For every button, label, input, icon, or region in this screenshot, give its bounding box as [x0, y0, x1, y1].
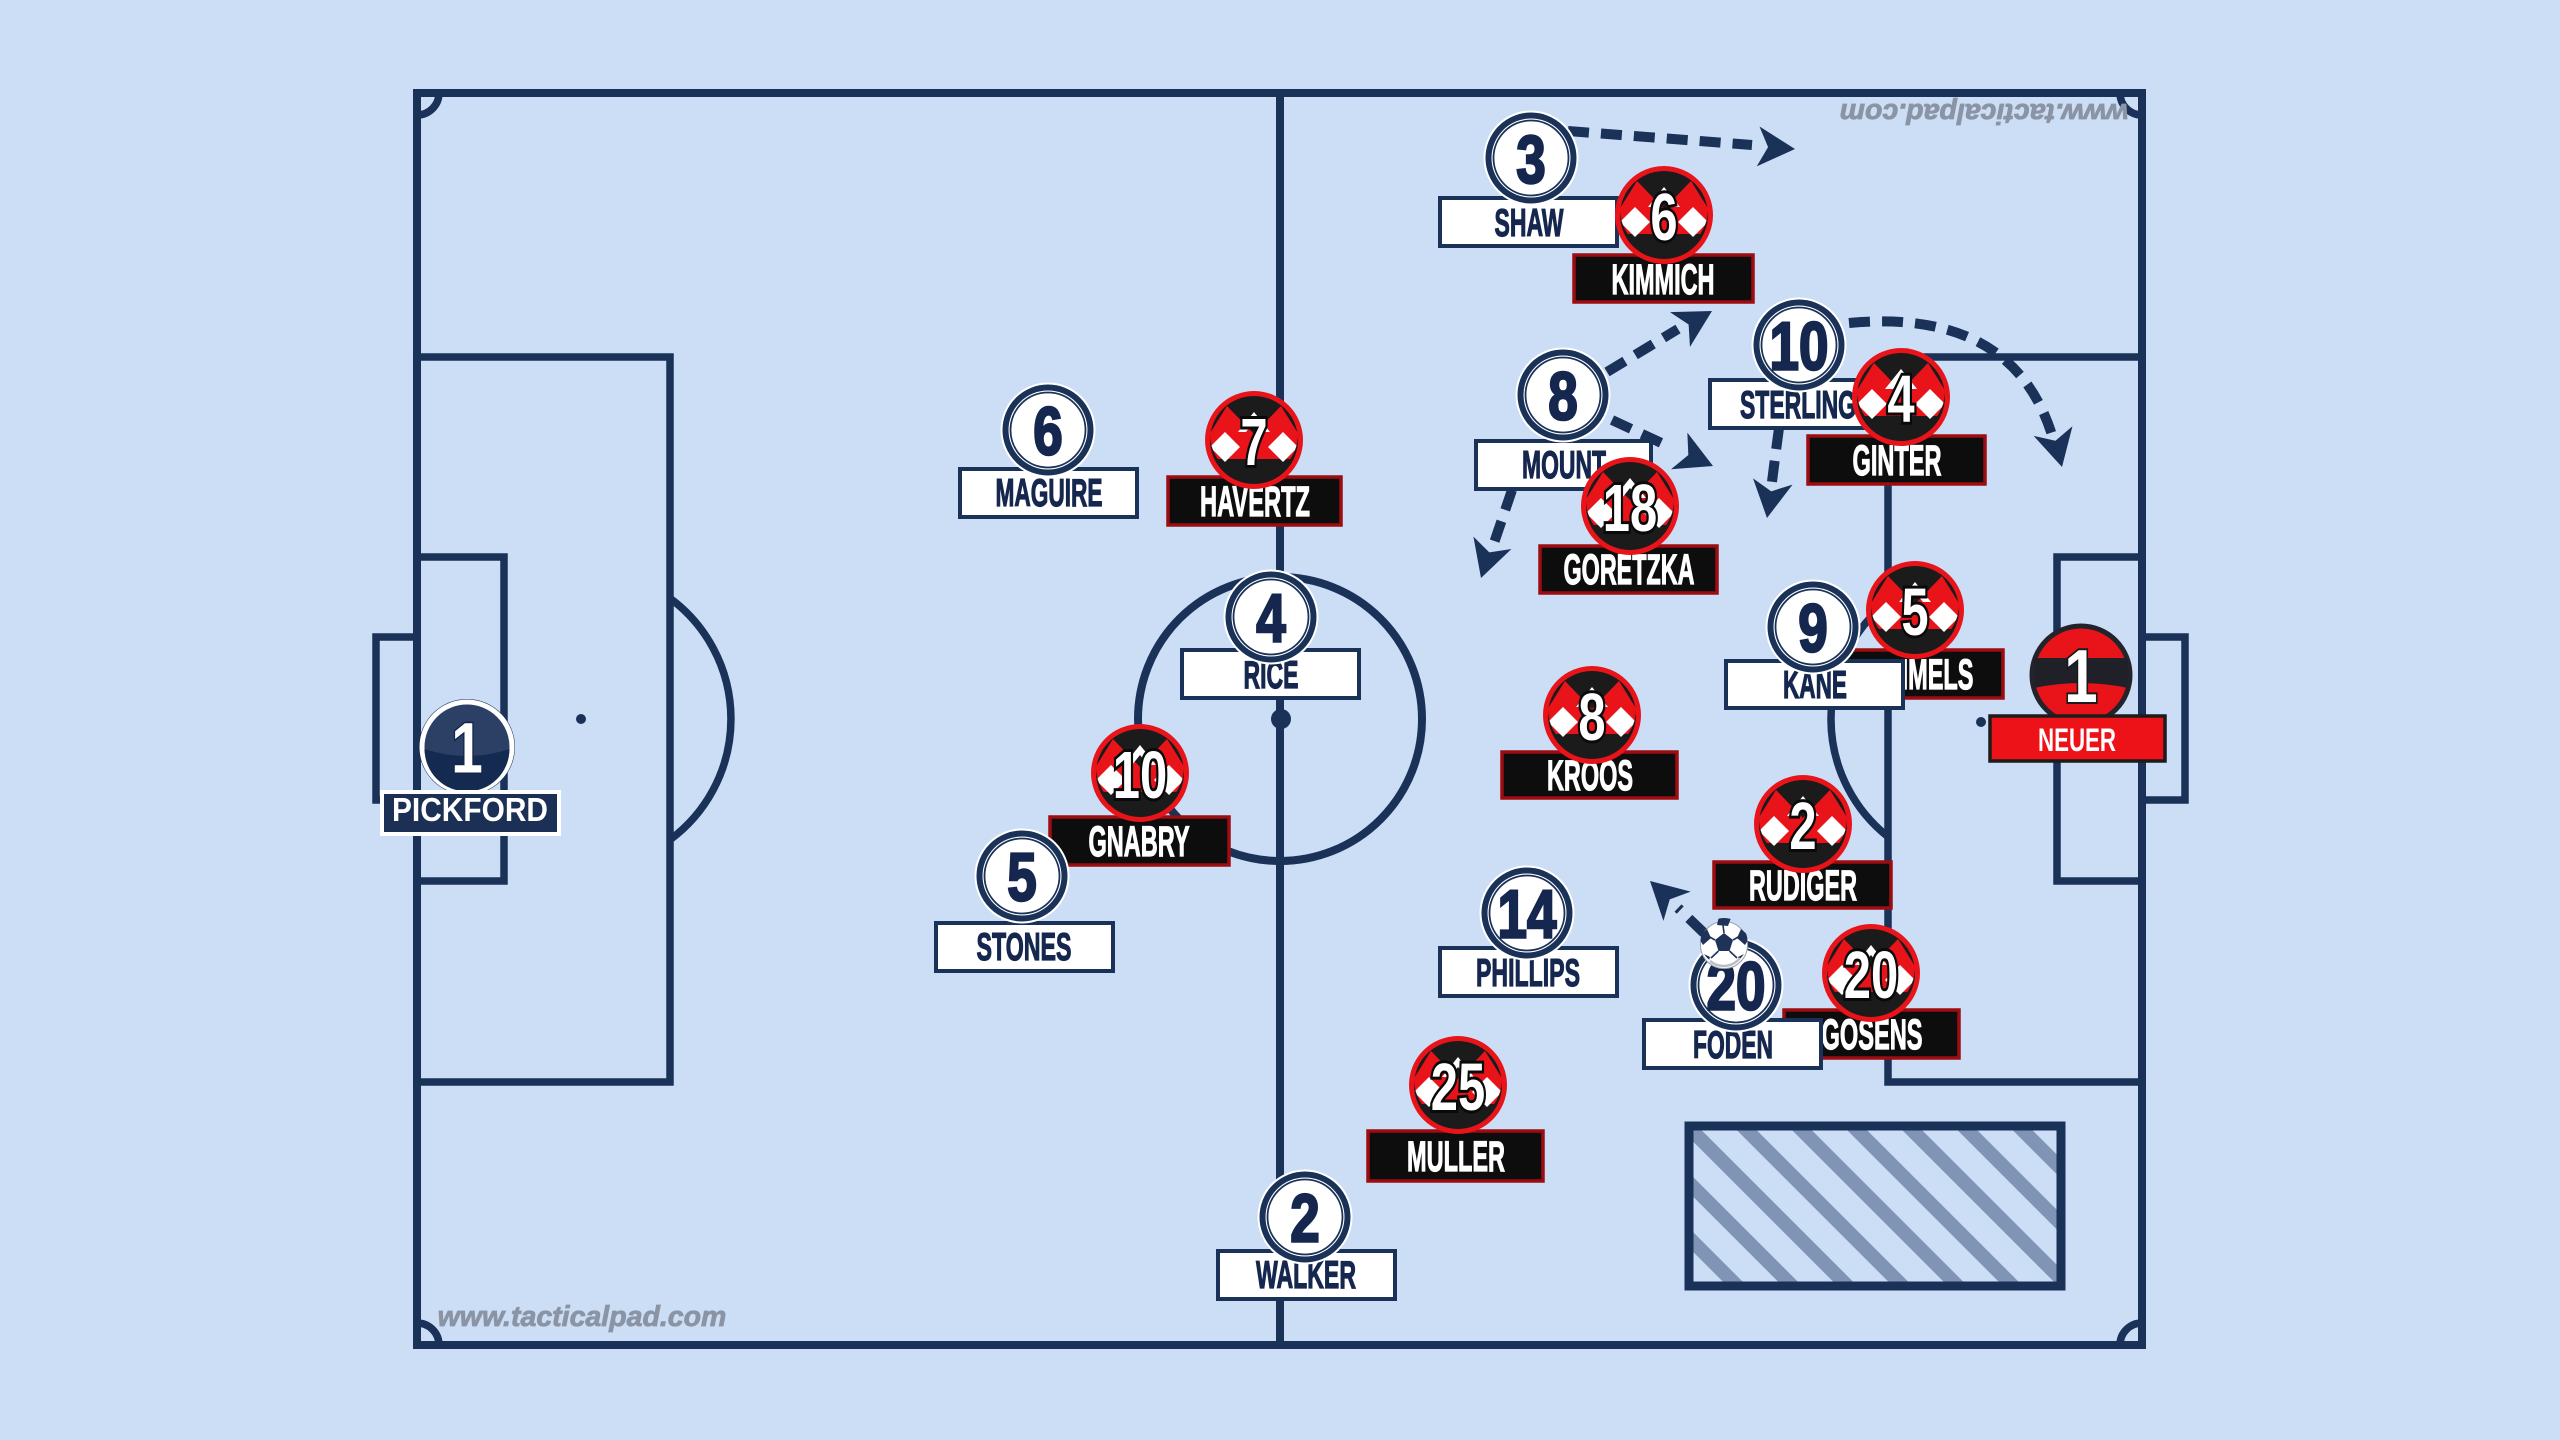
svg-text:8: 8 — [1548, 358, 1578, 434]
svg-text:14: 14 — [1498, 876, 1557, 952]
svg-text:18: 18 — [1603, 472, 1657, 546]
svg-text:3: 3 — [1516, 121, 1546, 197]
svg-text:10: 10 — [1770, 308, 1829, 384]
svg-text:8: 8 — [1578, 681, 1605, 755]
svg-text:MAGUIRE: MAGUIRE — [996, 472, 1103, 515]
svg-text:9: 9 — [1798, 590, 1828, 666]
svg-text:1: 1 — [2064, 636, 2097, 719]
svg-text:25: 25 — [1431, 1051, 1485, 1125]
svg-text:5: 5 — [1007, 839, 1037, 915]
svg-text:www.tacticalpad.com: www.tacticalpad.com — [1840, 97, 2129, 129]
svg-text:STONES: STONES — [977, 926, 1072, 969]
svg-text:10: 10 — [1113, 739, 1167, 813]
svg-text:PICKFORD: PICKFORD — [392, 791, 548, 828]
svg-text:MULLER: MULLER — [1407, 1133, 1505, 1181]
svg-text:6: 6 — [1033, 393, 1063, 469]
svg-text:6: 6 — [1650, 181, 1677, 255]
svg-text:2: 2 — [1789, 790, 1816, 864]
svg-text:5: 5 — [1901, 576, 1928, 650]
svg-text:GNABRY: GNABRY — [1089, 818, 1190, 866]
svg-text:SHAW: SHAW — [1495, 202, 1564, 245]
svg-text:www.tacticalpad.com: www.tacticalpad.com — [438, 1301, 727, 1333]
svg-text:2: 2 — [1290, 1180, 1320, 1256]
svg-text:1: 1 — [451, 708, 483, 788]
svg-text:4: 4 — [1887, 363, 1915, 437]
svg-text:7: 7 — [1240, 406, 1267, 480]
svg-text:4: 4 — [1256, 580, 1286, 656]
svg-text:20: 20 — [1844, 939, 1898, 1013]
svg-text:NEUER: NEUER — [2038, 722, 2116, 758]
